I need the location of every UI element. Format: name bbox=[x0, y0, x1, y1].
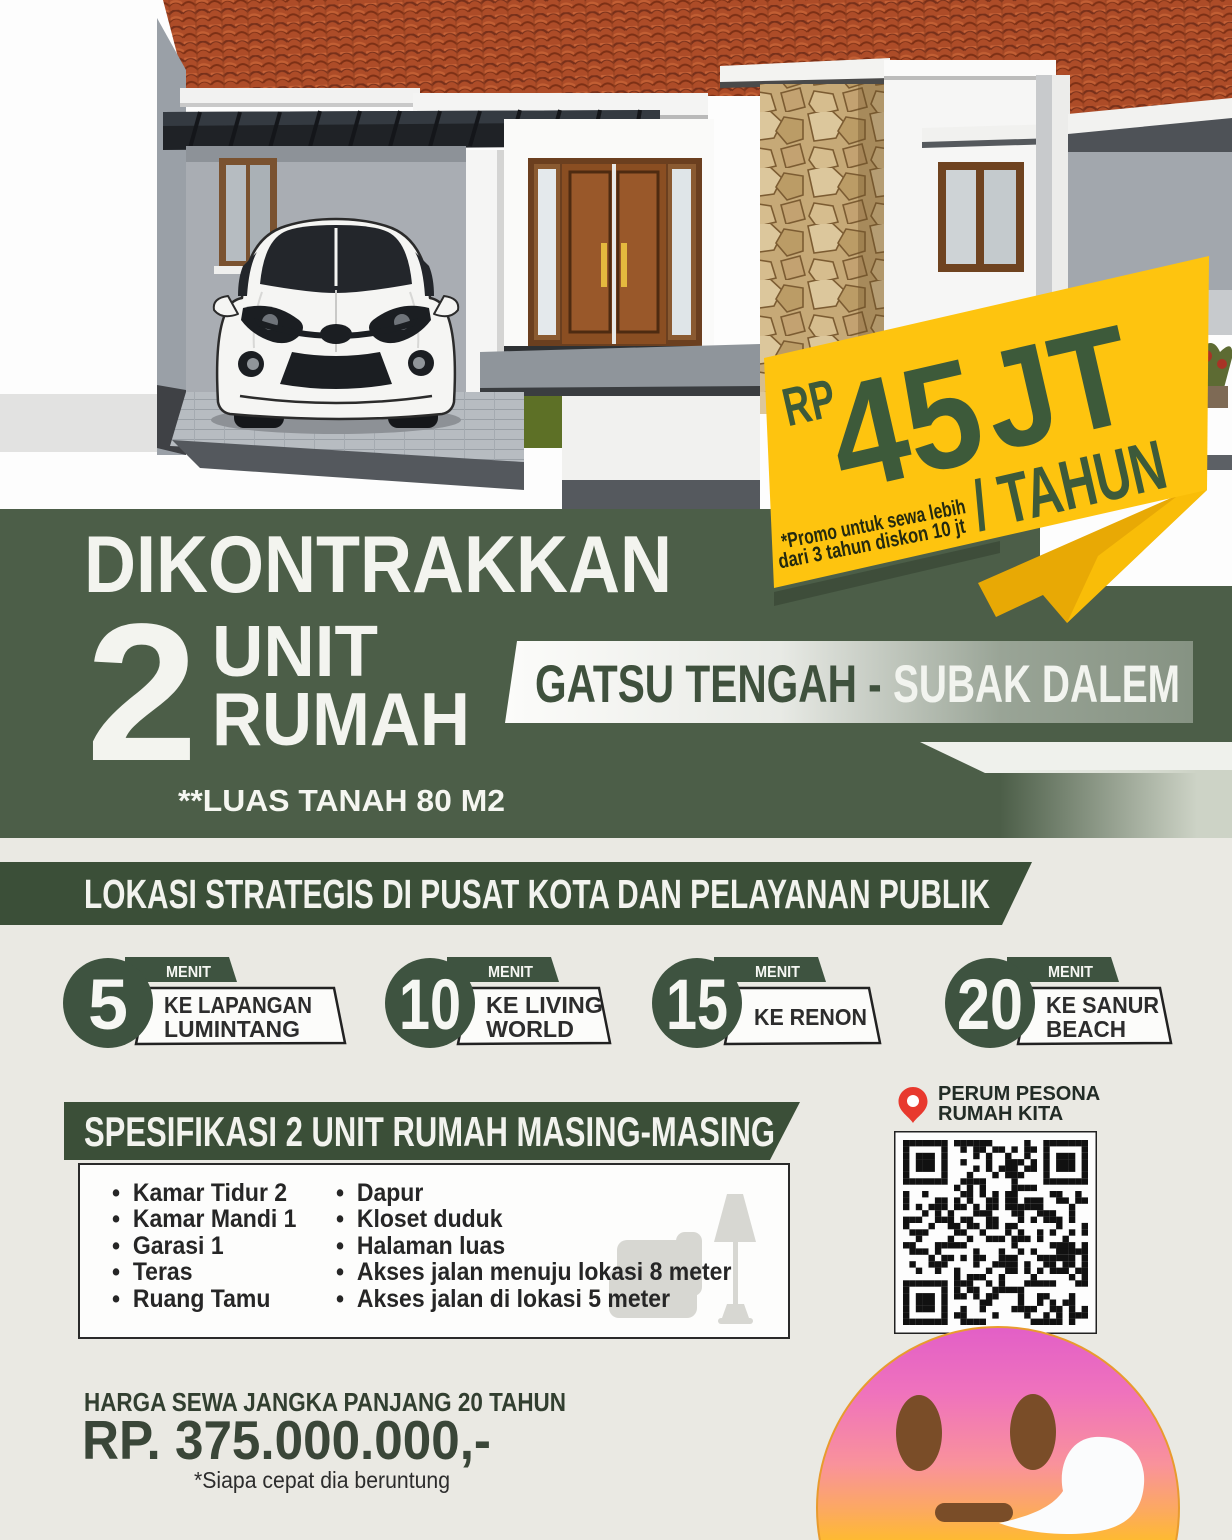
svg-text:5: 5 bbox=[88, 966, 128, 1045]
svg-text:LOKASI STRATEGIS DI PUSAT KOTA: LOKASI STRATEGIS DI PUSAT KOTA DAN PELAY… bbox=[84, 871, 990, 917]
svg-text:RP. 375.000.000,-: RP. 375.000.000,- bbox=[82, 1409, 491, 1471]
svg-text:KE SANUR: KE SANUR bbox=[1046, 992, 1159, 1018]
svg-text:KE LAPANGAN: KE LAPANGAN bbox=[164, 992, 312, 1018]
svg-text:KE LIVING: KE LIVING bbox=[486, 992, 603, 1018]
svg-text:MENIT: MENIT bbox=[1048, 964, 1093, 981]
svg-text:WORLD: WORLD bbox=[486, 1016, 574, 1042]
svg-text:LUMINTANG: LUMINTANG bbox=[164, 1016, 300, 1042]
svg-text:20: 20 bbox=[957, 966, 1023, 1045]
svg-text:MENIT: MENIT bbox=[755, 964, 800, 981]
svg-text:KE RENON: KE RENON bbox=[754, 1004, 867, 1030]
svg-text:15: 15 bbox=[666, 966, 728, 1045]
svg-text:SPESIFIKASI 2 UNIT RUMAH MASIN: SPESIFIKASI 2 UNIT RUMAH MASING-MASING bbox=[84, 1108, 775, 1155]
svg-text:*Siapa cepat dia beruntung: *Siapa cepat dia beruntung bbox=[194, 1467, 450, 1493]
svg-text:MENIT: MENIT bbox=[488, 964, 533, 981]
svg-text:10: 10 bbox=[399, 966, 461, 1045]
svg-text:**LUAS TANAH 80 M2: **LUAS TANAH 80 M2 bbox=[178, 783, 505, 818]
svg-text:MENIT: MENIT bbox=[166, 964, 211, 981]
svg-text:BEACH: BEACH bbox=[1046, 1016, 1126, 1042]
